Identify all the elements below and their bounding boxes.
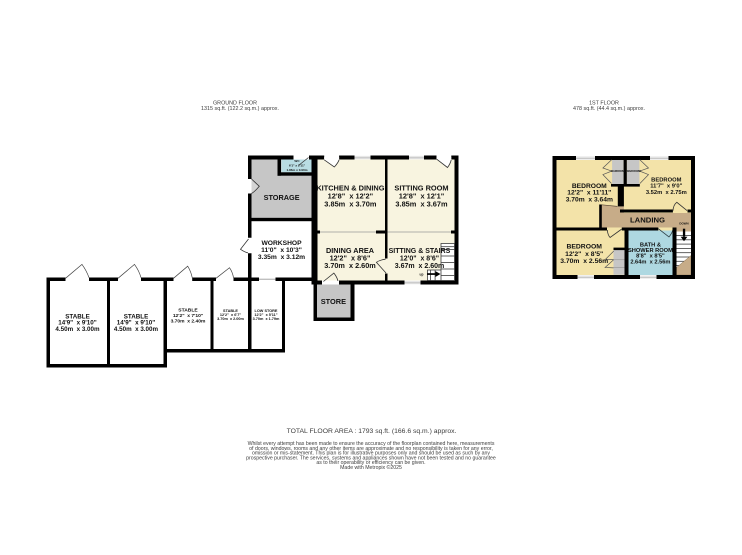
svg-text:6'1" x 2'11": 6'1" x 2'11": [289, 164, 306, 168]
svg-text:3.70m x 2.60m: 3.70m x 2.60m: [324, 261, 376, 270]
svg-text:3.85m x 3.70m: 3.85m x 3.70m: [324, 199, 377, 208]
svg-text:4.50m x 3.00m: 4.50m x 3.00m: [55, 326, 100, 333]
svg-text:478 sq.ft. (44.4 sq.m.) approx: 478 sq.ft. (44.4 sq.m.) approx.: [573, 106, 645, 112]
svg-text:12'2" x 7'10": 12'2" x 7'10": [173, 313, 204, 319]
svg-text:3.70m x 2.40m: 3.70m x 2.40m: [171, 318, 206, 324]
svg-text:11'0" x 10'3": 11'0" x 10'3": [261, 247, 302, 254]
svg-text:SITTING & STAIRS: SITTING & STAIRS: [389, 248, 451, 255]
svg-text:1315 sq.ft. (122.2 sq.m.) appr: 1315 sq.ft. (122.2 sq.m.) approx.: [201, 106, 279, 112]
svg-text:8'8" x 8'5": 8'8" x 8'5": [636, 254, 665, 260]
svg-text:3.85m x 3.67m: 3.85m x 3.67m: [395, 199, 448, 208]
svg-text:4.50m x 3.00m: 4.50m x 3.00m: [114, 326, 159, 333]
svg-text:BEDROOM: BEDROOM: [651, 178, 681, 184]
svg-text:BEDROOM: BEDROOM: [566, 244, 602, 251]
svg-text:2.64m x 2.56m: 2.64m x 2.56m: [630, 260, 670, 266]
svg-text:3.67m x 2.60m: 3.67m x 2.60m: [395, 263, 444, 270]
svg-text:up: up: [420, 272, 424, 276]
svg-text:WARDROBE: WARDROBE: [627, 170, 642, 173]
svg-text:WARDROBE: WARDROBE: [611, 170, 626, 173]
svg-text:Made with Metropix ©2025: Made with Metropix ©2025: [340, 464, 402, 471]
svg-text:12'2" x 8'5": 12'2" x 8'5": [565, 251, 603, 258]
svg-text:3.70m x 2.00m: 3.70m x 2.00m: [217, 317, 244, 321]
svg-text:3.70m x 2.56m: 3.70m x 2.56m: [560, 258, 608, 265]
svg-text:12'0" x 8'6": 12'0" x 8'6": [400, 255, 439, 262]
svg-text:3.70m x 1.79m: 3.70m x 1.79m: [253, 317, 280, 321]
svg-text:TOTAL FLOOR AREA : 1793 sq.ft.: TOTAL FLOOR AREA : 1793 sq.ft. (166.6 sq…: [287, 428, 457, 435]
svg-text:STORE: STORE: [321, 297, 346, 306]
svg-text:3.70m x 3.64m: 3.70m x 3.64m: [566, 196, 613, 203]
svg-text:STABLE: STABLE: [178, 308, 198, 314]
svg-text:STORAGE: STORAGE: [264, 193, 300, 202]
svg-text:11'7" x 9'0": 11'7" x 9'0": [650, 184, 682, 190]
svg-text:3.35m x 3.12m: 3.35m x 3.12m: [258, 254, 305, 261]
svg-text:DOWN: DOWN: [679, 221, 688, 225]
svg-text:LANDING: LANDING: [630, 216, 665, 225]
svg-text:3.52m x 2.75m: 3.52m x 2.75m: [646, 190, 687, 196]
svg-text:WC: WC: [294, 159, 300, 163]
svg-text:1.86m x 0.90m: 1.86m x 0.90m: [287, 168, 308, 172]
